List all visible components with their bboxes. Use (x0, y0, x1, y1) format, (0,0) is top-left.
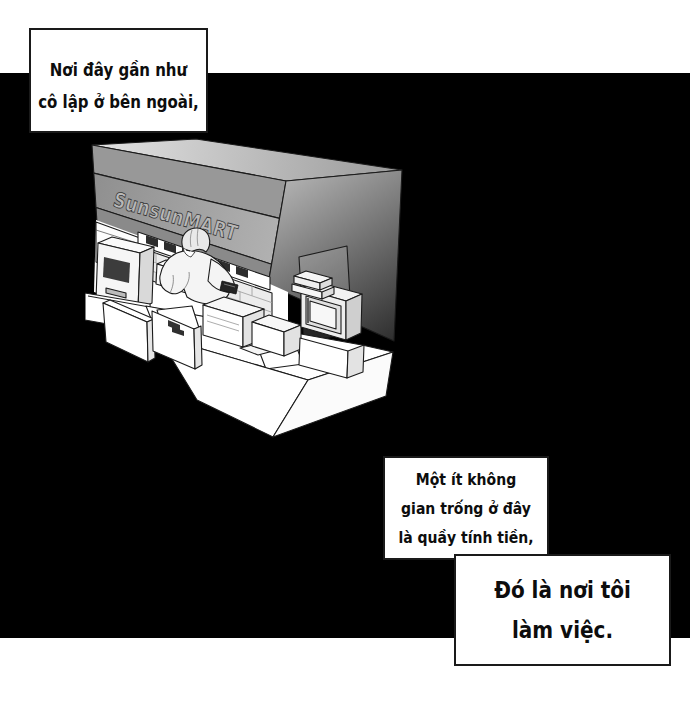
narration-box-1: Nơi đây gần như cô lập ở bên ngoài, (29, 28, 208, 133)
narration-line: là quầy tính tiền, (398, 520, 533, 554)
narration-line: cô lập ở bên ngoài, (38, 83, 199, 121)
store-illustration: SunsunMART (85, 138, 405, 440)
narration-box-3: Đó là nơi tôi làm việc. (454, 554, 671, 666)
comic-page: SunsunMART (0, 0, 690, 709)
narration-box-2: Một ít không gian trống ở đây là quầy tí… (383, 456, 549, 560)
cashier-head (182, 228, 210, 252)
narration-line: làm việc. (512, 606, 613, 653)
